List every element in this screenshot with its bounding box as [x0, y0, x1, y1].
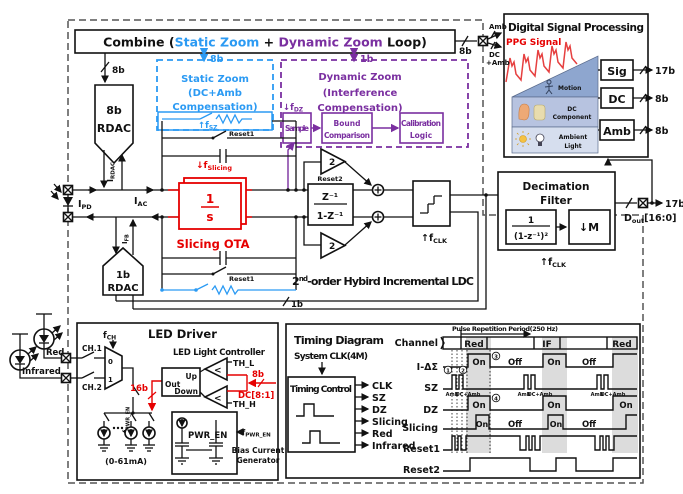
svg-text:Up: Up: [186, 372, 198, 381]
svg-text:1: 1: [108, 376, 113, 384]
svg-text:8b: 8b: [655, 126, 669, 137]
svg-text:On: On: [619, 401, 632, 411]
ch1-label: CH.1: [82, 344, 102, 353]
svg-text:Dynamic Zoom: Dynamic Zoom: [318, 72, 401, 83]
rdac-bus: 8b: [112, 66, 125, 76]
xray-hand-icon: [534, 105, 545, 120]
slicing-ota-name: Slicing OTA: [177, 237, 250, 251]
ppg-afe-block-diagram: Combine (Static Zoom + Dynamic Zoom Loop…: [0, 0, 683, 494]
svg-text:Generator: Generator: [237, 456, 280, 465]
svg-text:Off: Off: [508, 420, 522, 430]
irdac-label: IRDAC: [106, 162, 117, 182]
summer-bottom-icon: [373, 212, 384, 223]
svg-text:On: On: [476, 420, 489, 429]
dsp-title: Digital Signal Processing: [508, 22, 644, 34]
svg-text:DC+Amb: DC+Amb: [528, 392, 553, 398]
iac-label: IAC: [134, 196, 148, 208]
reset1-top-label: Reset1: [229, 130, 255, 138]
svg-text:3: 3: [494, 355, 498, 361]
svg-text:Component: Component: [553, 114, 592, 121]
svg-text:Red: Red: [372, 429, 393, 440]
svg-text:DC: DC: [608, 93, 625, 106]
svg-text:1-Z⁻¹: 1-Z⁻¹: [317, 211, 344, 222]
svg-text:CLK: CLK: [372, 381, 393, 392]
decimation-filter-block: Decimation Filter 1 (1-z⁻¹)² ↓M ↑fCLK: [498, 172, 615, 269]
svg-text:Down: Down: [174, 387, 198, 396]
combine-block: Combine (Static Zoom + Dynamic Zoom Loop…: [75, 30, 477, 82]
timing-control-label: Timing Control: [290, 385, 352, 395]
fsz-label: ↑fSZ: [198, 121, 218, 132]
svg-text:4: 4: [494, 397, 498, 403]
pad-anode-icon: [64, 186, 73, 195]
svg-text:On: On: [550, 420, 563, 429]
svg-text:Red: Red: [612, 340, 631, 350]
svg-text:Decimation: Decimation: [523, 181, 590, 193]
ppg-signal-label: PPG Signal: [506, 38, 561, 48]
svg-text:2: 2: [461, 369, 465, 375]
svg-text:Sig: Sig: [607, 65, 627, 78]
svg-text:Z⁻¹: Z⁻¹: [322, 192, 338, 203]
fclk-decim-label: ↑fCLK: [540, 257, 567, 269]
svg-text:<: <: [214, 394, 222, 404]
svg-text:Filter: Filter: [540, 195, 573, 207]
dsp-block: Digital Signal Processing PPG Signal Mot…: [504, 14, 675, 157]
infrared-led-label: Infrared: [22, 367, 61, 377]
svg-text:SZ: SZ: [424, 383, 438, 394]
pwren-label: PWR_EN: [188, 431, 227, 441]
bus16-label: 16b: [130, 384, 148, 394]
svg-text:Amb: Amb: [603, 125, 631, 138]
thl-label: TH_L: [233, 359, 254, 368]
photodiode-icon: [63, 197, 73, 206]
dc81-label: DC[8:1]: [238, 391, 274, 401]
finger-icon: [519, 104, 529, 120]
dout-output: 17b Dout[16:0]: [608, 159, 683, 225]
bus8-label: 8b: [252, 370, 264, 380]
timing-title: Timing Diagram: [294, 334, 384, 347]
combine-title: Combine (Static Zoom + Dynamic Zoom Loop…: [103, 35, 427, 50]
svg-text:0: 0: [108, 358, 113, 366]
svg-text:Light: Light: [564, 143, 581, 150]
current-range-label: (0-61mA): [105, 457, 147, 466]
svg-text:(1-z⁻¹)²: (1-z⁻¹)²: [514, 232, 548, 242]
pad-combine-out-icon: [479, 37, 488, 46]
svg-text:(DC+Amb: (DC+Amb: [188, 88, 242, 99]
svg-text:Ambient: Ambient: [559, 134, 588, 141]
ch2-label: CH.2: [82, 383, 102, 392]
pad-cathode-icon: [64, 213, 73, 222]
rdac-8b: 8b RDAC IRDAC: [95, 85, 133, 190]
pad-ch1-icon: [62, 354, 71, 363]
summer-top-icon: [373, 185, 384, 196]
svg-text:17b: 17b: [655, 66, 675, 77]
dout-label: Dout[16:0]: [624, 213, 676, 225]
svg-text:Static Zoom: Static Zoom: [181, 74, 249, 85]
ldc-caption: 2nd-order Hybird Incremental LDC: [292, 275, 474, 288]
thh-label: TH_H: [233, 400, 256, 409]
svg-text:On: On: [547, 401, 560, 411]
reset2-label: Reset2: [317, 175, 342, 183]
ifb-label: IFB: [121, 234, 131, 244]
svg-text:Off: Off: [582, 420, 596, 430]
svg-text:1b: 1b: [116, 270, 130, 281]
fslicing-label: ↓fSlicing: [196, 161, 232, 172]
dc-wire-label: DC: [489, 51, 500, 59]
amb-wire-label: Amb: [489, 23, 507, 31]
svg-text:Reset2: Reset2: [403, 465, 440, 476]
svg-text:On: On: [547, 358, 560, 368]
pad-dout-icon: [639, 199, 648, 208]
svg-text:Bias Current: Bias Current: [232, 446, 285, 455]
svg-text:2: 2: [329, 242, 335, 252]
fclk-quantizer-label: ↑fCLK: [421, 233, 448, 245]
svg-text:Calibration: Calibration: [401, 119, 441, 128]
svg-text:RDAC: RDAC: [107, 283, 138, 294]
fb-bus-label: 1b: [291, 300, 303, 310]
svg-text:<: <: [214, 366, 222, 376]
svg-text:Reset1: Reset1: [403, 444, 440, 455]
svg-text:(Interference: (Interference: [323, 88, 398, 99]
incremental-ldc: Reset2 Z⁻¹ 1-Z⁻¹ 2 2 ↑fCLK 2nd-order Hyb…: [292, 149, 474, 288]
svg-text:Slicing: Slicing: [402, 423, 438, 434]
dout-bus: 17b: [665, 199, 683, 210]
svg-text:Red: Red: [464, 340, 483, 350]
rdac-1b: 1b RDAC IFB: [103, 217, 143, 309]
svg-text:SZ: SZ: [372, 393, 386, 404]
reset1-bottom-label: Reset1: [229, 275, 255, 283]
svg-text:↓M: ↓M: [579, 221, 599, 234]
led-driver-block: LED Driver Red Infrared CH.1 CH.2 0 1 fC…: [10, 314, 285, 480]
svg-text:IF: IF: [542, 340, 552, 350]
svg-text:On: On: [472, 401, 485, 411]
svg-text:Bound: Bound: [334, 119, 361, 128]
pad-ch2-icon: [62, 374, 71, 383]
svg-text:Comparison: Comparison: [324, 131, 370, 140]
svg-text:RDAC: RDAC: [97, 122, 131, 135]
sysclk-label: System CLK(4M): [294, 352, 368, 362]
svg-text:Channel: Channel: [395, 338, 438, 349]
svg-text:s: s: [206, 210, 213, 224]
led-driver-title: LED Driver: [148, 327, 217, 341]
svg-text:1: 1: [528, 216, 534, 226]
svg-text:Off: Off: [508, 358, 522, 368]
svg-text:Logic: Logic: [410, 131, 432, 140]
svg-text:I-ΔΣ: I-ΔΣ: [417, 362, 438, 373]
svg-text:DZ: DZ: [423, 405, 438, 416]
svg-text:1: 1: [446, 369, 450, 375]
prp-label: Pulse Repetition Period(250 Hz): [452, 325, 558, 333]
svg-text:DZ: DZ: [372, 405, 387, 416]
combine-out-bus: 8b: [459, 47, 472, 57]
timing-section: Timing Diagram System CLK(4M) Timing Con…: [286, 324, 640, 478]
svg-text:Motion: Motion: [558, 85, 581, 92]
svg-text:DC: DC: [567, 106, 577, 113]
svg-text:On: On: [472, 358, 485, 368]
svg-text:8b: 8b: [655, 94, 669, 105]
svg-text:8b: 8b: [106, 104, 122, 117]
controller-title: LED Light Controller: [173, 348, 266, 358]
static-zoom-block: Static Zoom (DC+Amb Compensation) ↑fSZ: [157, 60, 273, 132]
slicing-ota-block: 1 s ↓fSlicing Slicing OTA: [168, 161, 252, 251]
svg-text:2: 2: [329, 158, 335, 168]
svg-text:Sample: Sample: [285, 124, 309, 133]
svg-text:1: 1: [206, 192, 214, 206]
dynamic-zoom-block: Dynamic Zoom (Interference Compensation)…: [281, 60, 468, 192]
dcamb-wire-label: +Amb: [486, 59, 510, 67]
svg-text:Off: Off: [582, 358, 596, 368]
fdz-label: ↓fDZ: [283, 103, 304, 114]
ipd-label: IPD: [78, 199, 92, 211]
